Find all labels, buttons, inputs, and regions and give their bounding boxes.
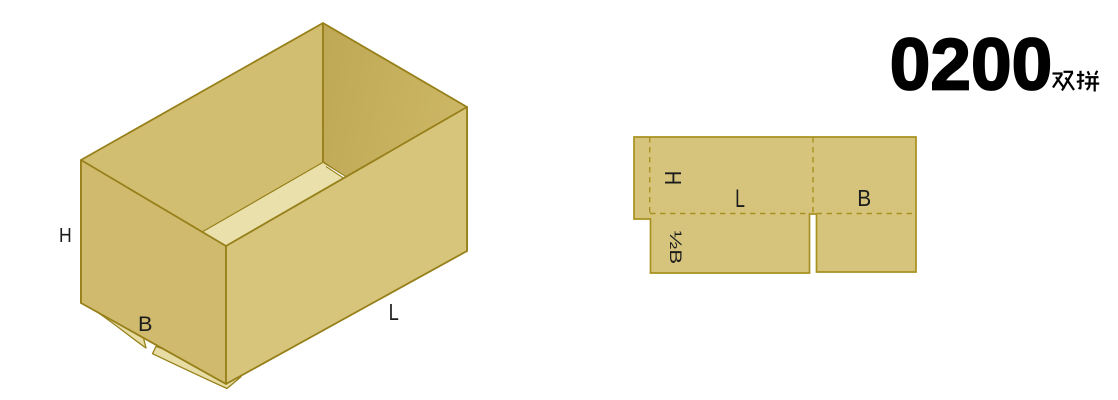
svg-text:H: H xyxy=(59,224,72,246)
svg-text:H: H xyxy=(659,171,686,185)
svg-text:L: L xyxy=(389,300,399,325)
svg-text:0200: 0200 xyxy=(890,25,1052,106)
svg-text:½B: ½B xyxy=(666,231,685,265)
svg-text:L: L xyxy=(735,184,745,213)
svg-text:B: B xyxy=(857,185,871,211)
svg-text:B: B xyxy=(138,311,152,336)
